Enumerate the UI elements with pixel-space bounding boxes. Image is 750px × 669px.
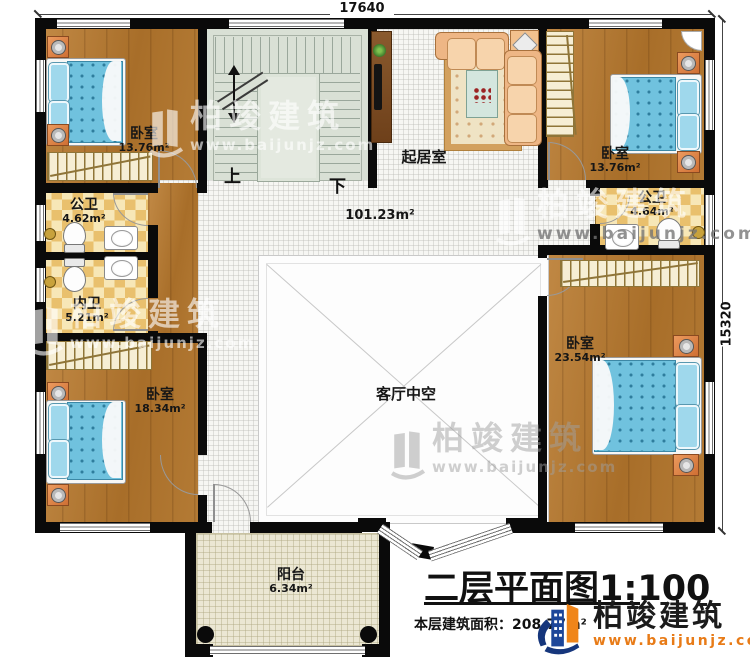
bay-window-right [428,523,513,561]
wall [198,495,207,522]
window [57,19,130,28]
room-area: 4.62m² [34,213,134,226]
door-leaf [158,150,160,188]
room-name: 卧室 [530,336,630,352]
sink-bowl [111,230,133,247]
lamp-icon [51,386,66,401]
sofa-cushion [476,38,505,70]
shower-head [44,228,56,240]
room-area: 4.64m² [602,206,702,219]
wall [148,183,158,193]
balcony-column [197,626,214,643]
nightstand [677,151,700,173]
label-bedroom-bottom-left: 卧室 18.34m² [110,387,210,416]
dimension-top-value: 17640 [330,1,394,16]
lamp-icon [681,155,696,170]
pillow [676,363,699,407]
brand-logo-icon [531,600,589,658]
room-name: 公卫 [34,197,134,213]
wardrobe-rod [50,156,150,177]
label-bedroom-right: 卧室 23.54m² [530,336,630,365]
wall [148,225,158,298]
label-balcony: 阳台 6.34m² [241,567,341,596]
shower-head [692,226,705,239]
lamp-icon [51,128,66,143]
balcony-column [360,626,377,643]
wall [538,296,547,522]
lamp-icon [679,458,694,473]
label-bath-inner: 内卫 5.21m² [37,296,137,325]
wall [46,183,158,193]
room-area: 101.23m² [330,209,430,224]
balcony-wall [185,644,213,657]
brand-logo: 柏竣建筑 www.baijunjz.com [531,600,750,658]
sink [104,226,138,250]
nightstand [47,484,69,506]
tv [374,64,382,110]
balcony-wall [362,644,390,657]
room-area: 13.76m² [565,162,665,175]
stairs-up-label: 上 [224,162,241,187]
label-bedroom-top-left: 卧室 13.76m² [94,126,194,155]
stair-direction-line [233,75,235,113]
stair-landing [257,73,320,182]
pillow [49,440,69,478]
sink [605,224,639,250]
door-leaf [113,193,148,195]
label-bedroom-top-right: 卧室 13.76m² [565,146,665,175]
wall [250,522,362,533]
wall [586,180,714,188]
label-void: 客厅中空 [356,386,456,403]
balcony-wall [379,522,390,655]
sofa-cushion [507,85,537,114]
window [589,19,662,28]
stairs-down-label: 下 [329,172,346,197]
wall [538,255,547,258]
pillow [49,404,69,442]
room-name: 卧室 [565,146,665,162]
room-area: 23.54m² [530,352,630,365]
nightstand [47,36,69,58]
window [229,19,344,28]
wardrobe [46,341,152,370]
sofa-cushion [447,38,476,70]
brand-url: www.baijunjz.com [593,633,750,649]
label-sitting-room: 起居室 [374,149,474,166]
nightstand [47,124,69,146]
table-flowers [473,87,491,103]
shower-head [44,276,56,288]
room-name: 起居室 [374,149,474,166]
window [36,60,45,112]
wardrobe [546,31,574,137]
stair-arrow-up-icon [228,65,240,75]
door-leaf [213,484,215,522]
pillow [678,114,699,150]
dimension-line-right [722,20,723,532]
room-name: 卧室 [94,126,194,142]
window [575,523,663,532]
wardrobe [560,260,700,287]
brand-name: 柏竣建筑 [593,600,750,633]
window [705,60,714,130]
room-name: 公卫 [602,190,702,206]
label-bath-public-right: 公卫 4.64m² [602,190,702,219]
sink [104,256,138,280]
nightstand [677,52,700,74]
sofa-cushion [507,114,537,143]
sink-bowl [111,260,133,277]
room-area: 18.34m² [110,403,210,416]
room-area: 5.21m² [37,312,137,325]
nightstand [673,335,699,357]
nightstand [673,454,699,476]
dimension-right-value: 15320 [720,305,735,347]
door-leaf [113,329,148,331]
coffee-table [466,70,498,118]
window [60,523,150,532]
stair-arrow-down-icon [228,113,240,123]
window [705,195,714,245]
lamp-icon [679,339,694,354]
wall [590,224,600,245]
sink-bowl [612,229,634,247]
door-leaf [548,142,550,180]
pillow [678,80,699,116]
wardrobe-rod [563,262,698,282]
toilet [63,266,86,292]
sofa-cushion [507,56,537,85]
label-hall-area: 101.23m² [330,209,430,224]
room-name: 阳台 [241,567,341,583]
plant-icon [373,44,386,57]
balcony-wall [185,522,196,655]
label-bath-public-left: 公卫 4.62m² [34,197,134,226]
window [36,392,45,454]
floor-plan: 卧室 13.76m² 公卫 4.62m² 内卫 5.21m² 卧室 18.34m… [0,0,750,669]
lamp-icon [51,40,66,55]
wardrobe-rod [49,345,149,366]
stair-steps-right [318,73,360,179]
toilet-tank [658,240,680,249]
room-name: 卧室 [110,387,210,403]
lamp-icon [51,488,66,503]
toilet-tank [64,244,85,253]
pillow [49,63,69,102]
room-area: 13.76m² [94,142,194,155]
wardrobe [47,152,153,181]
room-area: 6.34m² [241,583,341,596]
room-name: 内卫 [37,296,137,312]
balcony-window [210,646,365,655]
window [705,382,714,454]
wall [590,188,600,196]
pillow [676,405,699,449]
lamp-icon [681,56,696,71]
wall [198,29,207,188]
wall [538,180,548,188]
room-name: 客厅中空 [356,386,456,403]
